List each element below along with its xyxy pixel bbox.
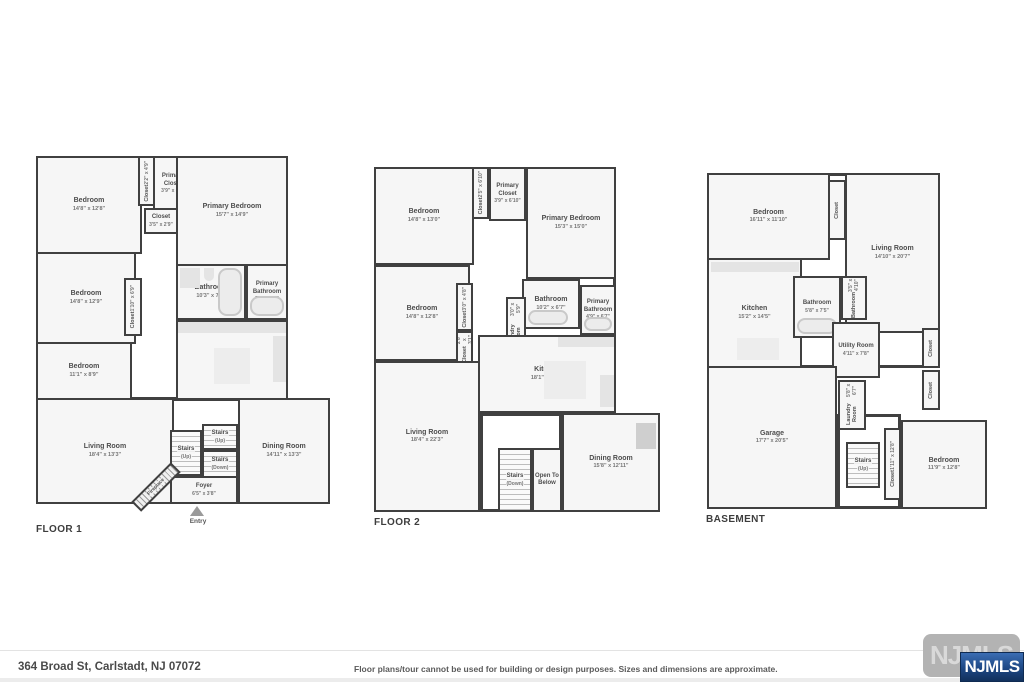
room-name: Laundry Room: [846, 399, 858, 428]
bathtub-fixture: [797, 318, 837, 334]
room-kitchen: Kitchen 15'2" x 14'5": [707, 258, 802, 368]
room-name: Garage: [760, 430, 784, 439]
room-name: Living Room: [871, 245, 913, 254]
room-name: Bedroom: [753, 209, 784, 218]
room-utility: Utility Room 4'11" x 7'8": [832, 322, 880, 378]
basement-title: BASEMENT: [706, 514, 765, 525]
property-address: 364 Broad St, Carlstadt, NJ 07072: [18, 661, 201, 673]
kitchen-island-fixture: [737, 338, 779, 360]
room-name: Utility Room: [838, 343, 873, 351]
room-name: Stairs: [854, 458, 873, 466]
room-name: Kitchen: [742, 305, 768, 314]
room-name: Closet: [928, 382, 934, 399]
floorplan-page: Bedroom 14'8" x 12'8" Closet2'2" x 4'9" …: [0, 0, 1024, 682]
room-dims: 15'2" x 14'5": [738, 314, 770, 321]
room-closet-3: Closet: [922, 370, 940, 410]
room-dims: 5'8" x 7'5": [805, 308, 829, 315]
room-bedroom-2: Bedroom 11'9" x 12'8": [901, 420, 987, 509]
room-bathroom-2: Bathroom3'5" x 4'10": [841, 276, 867, 320]
room-name: Bathroom: [803, 300, 831, 308]
room-name: Bathroom: [851, 292, 857, 318]
room-closet-1: Closet: [828, 180, 846, 240]
njmls-logo: NJMLS: [960, 652, 1024, 682]
room-name: Closet: [890, 470, 896, 487]
room-dims: 1'11" x 12'8": [890, 441, 896, 470]
room-name: Bedroom: [929, 457, 960, 466]
room-dims: 14'10" x 20'7": [875, 254, 910, 261]
disclaimer-text: Floor plans/tour cannot be used for buil…: [354, 664, 778, 674]
room-dims: 16'11" x 11'10": [750, 217, 788, 224]
kitchen-counter-fixture: [711, 262, 799, 272]
room-name: Closet: [834, 202, 840, 219]
bottom-edge: [0, 678, 1024, 682]
stairs-up: Stairs (Up): [846, 442, 880, 488]
room-dims: 11'9" x 12'8": [928, 465, 960, 472]
room-dims: 4'11" x 7'8": [843, 351, 869, 358]
room-garage: Garage 17'7" x 20'5": [707, 366, 837, 509]
room-bedroom-1: Bedroom 16'11" x 11'10": [707, 173, 830, 260]
room-laundry: Laundry Room5'8" x 6'7": [838, 380, 866, 430]
footer-divider: [0, 650, 1024, 651]
room-name: Closet: [928, 340, 934, 357]
stairs-direction: (Up): [857, 466, 869, 473]
basement-plan: Bedroom 16'11" x 11'10" Closet Living Ro…: [0, 0, 1024, 682]
room-closet-4: Closet1'11" x 12'8": [884, 428, 901, 500]
room-dims: 17'7" x 20'5": [756, 438, 788, 445]
room-dims: 3'5" x 4'10": [848, 278, 860, 292]
room-dims: 5'8" x 6'7": [846, 382, 858, 399]
room-closet-2: Closet: [922, 328, 940, 368]
